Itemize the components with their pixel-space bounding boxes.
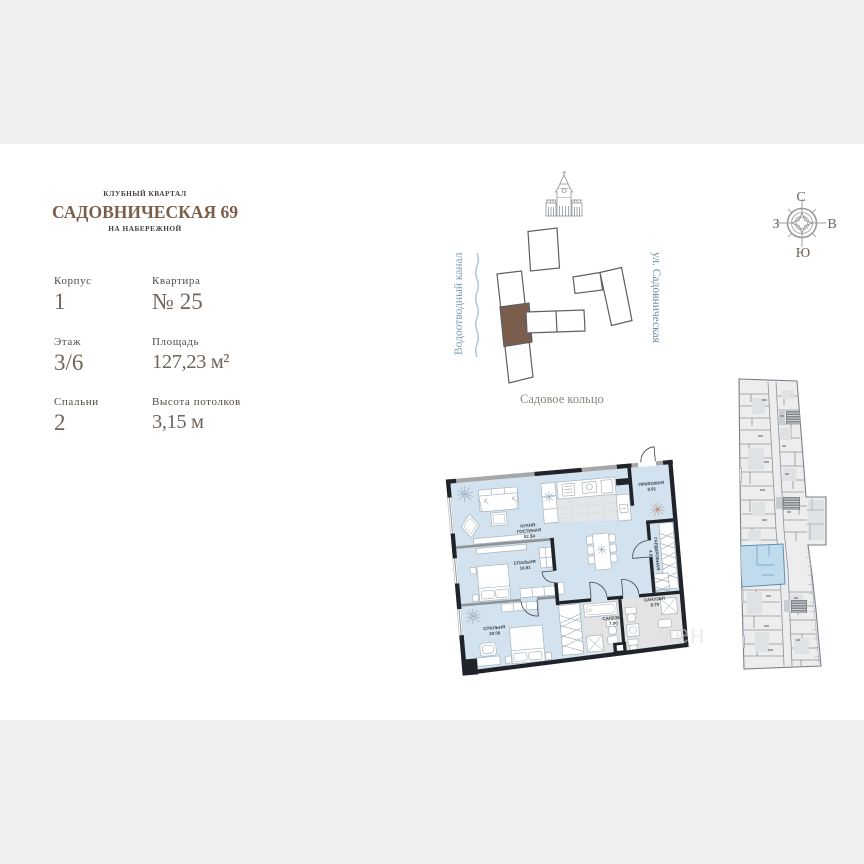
svg-text:16.91: 16.91 [519, 565, 531, 571]
svg-text:Садовое кольцо: Садовое кольцо [520, 392, 604, 406]
svg-text:В: В [827, 217, 836, 232]
svg-text:8.70: 8.70 [650, 602, 660, 608]
svg-text:Водоотводный канал: Водоотводный канал [453, 252, 465, 355]
svg-text:7.00: 7.00 [609, 620, 619, 626]
svg-text:З: З [772, 217, 779, 232]
svg-text:С: С [796, 190, 805, 205]
svg-text:Ю: Ю [796, 246, 810, 261]
svg-text:20.08: 20.08 [489, 630, 501, 636]
svg-text:52.54: 52.54 [524, 533, 536, 539]
svg-text:8.91: 8.91 [647, 486, 657, 492]
svg-text:мен: мен [656, 619, 705, 649]
svg-text:ул. Садовническая: ул. Садовническая [650, 252, 662, 344]
svg-text:4.91: 4.91 [648, 550, 654, 560]
